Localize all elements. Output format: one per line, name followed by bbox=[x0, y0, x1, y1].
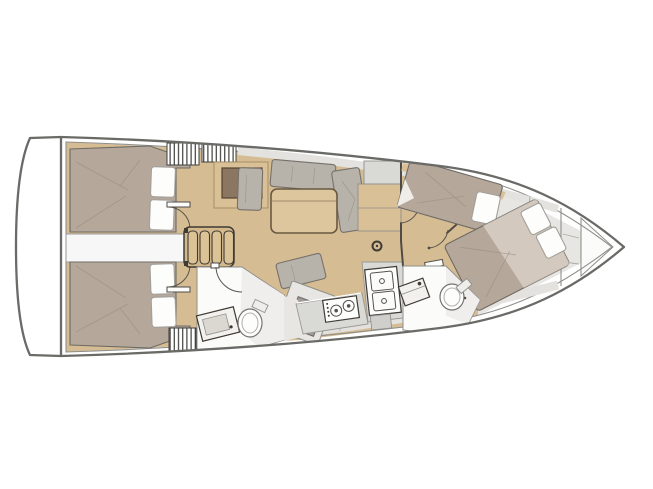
head-door bbox=[211, 263, 219, 268]
cabin-door bbox=[167, 202, 190, 207]
pillow bbox=[150, 167, 175, 198]
engine-compartment bbox=[66, 234, 184, 262]
step-tread bbox=[212, 231, 222, 264]
saloon-table bbox=[271, 189, 337, 233]
pillow bbox=[151, 297, 176, 328]
settee-back bbox=[270, 159, 336, 191]
yacht-floor-plan bbox=[0, 0, 653, 489]
cockpit-locker-hatch bbox=[202, 144, 236, 162]
step-tread bbox=[224, 231, 234, 264]
sideboard-top bbox=[364, 161, 401, 184]
galley-locker bbox=[370, 314, 391, 330]
sink-basin bbox=[372, 291, 396, 311]
step-tread bbox=[200, 231, 210, 264]
settee-left-arm bbox=[237, 168, 262, 211]
swim-platform bbox=[17, 139, 61, 354]
cabin-door bbox=[167, 287, 190, 292]
galley-sink bbox=[365, 266, 402, 315]
yacht-floor-plan-canvas bbox=[0, 0, 653, 489]
stove bbox=[323, 296, 360, 323]
sideboard bbox=[358, 184, 401, 231]
step-tread bbox=[188, 231, 198, 264]
cockpit-locker-hatch bbox=[167, 143, 199, 165]
companionway-steps bbox=[184, 227, 234, 267]
sink-basin bbox=[370, 271, 394, 291]
